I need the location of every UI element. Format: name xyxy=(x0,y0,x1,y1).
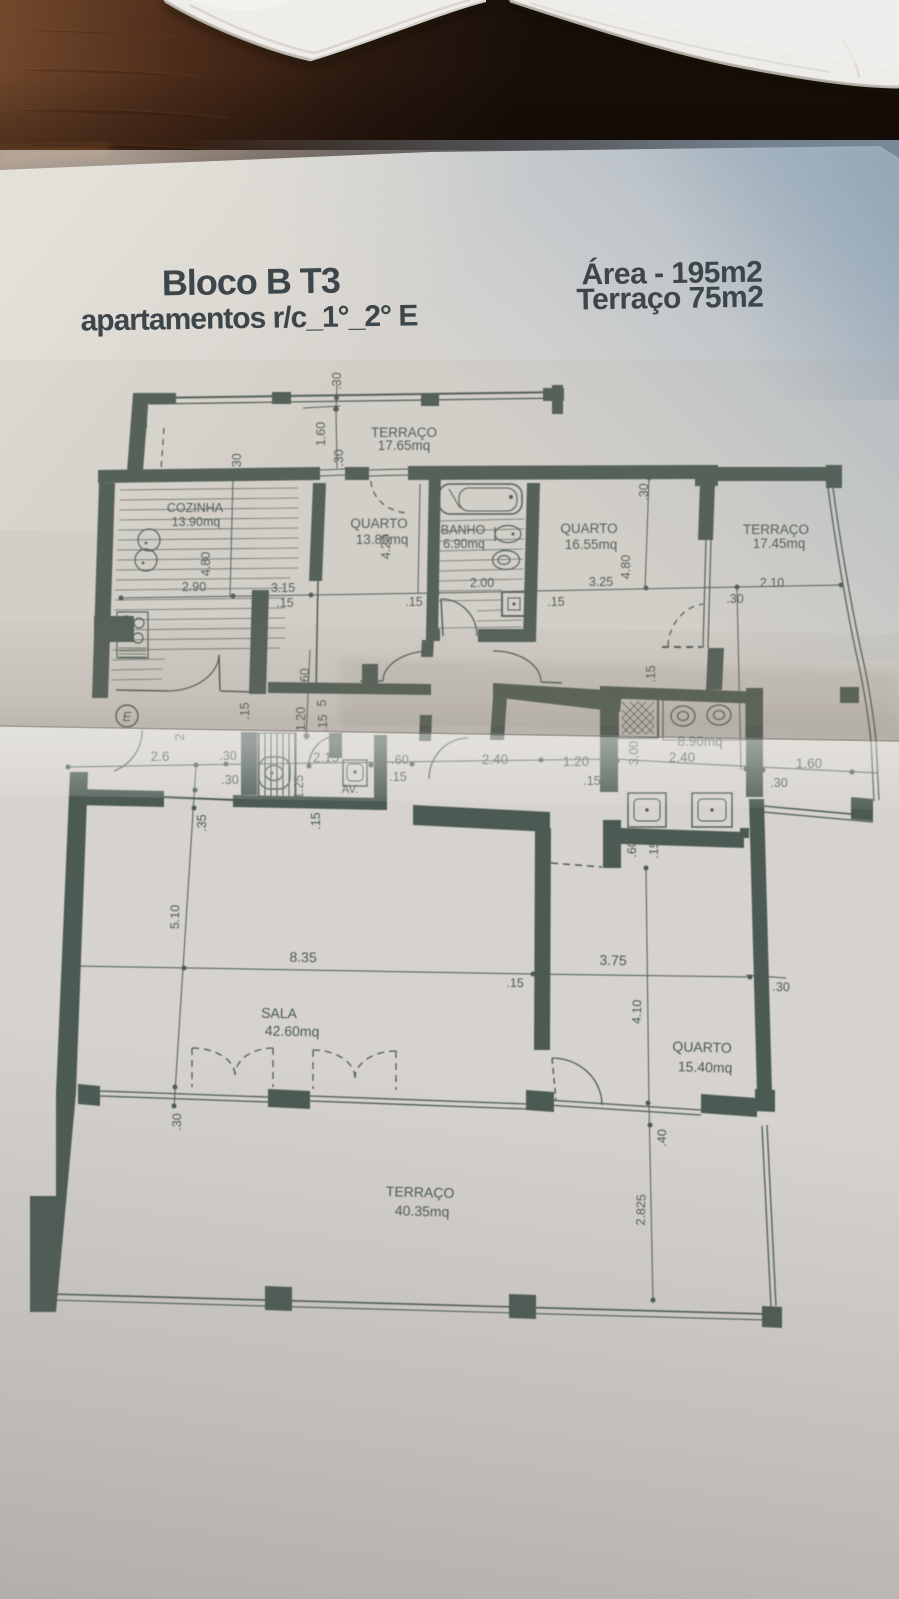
svg-text:5.10: 5.10 xyxy=(168,905,182,930)
svg-text:apartamentos r/c_1°_2° E: apartamentos r/c_1°_2° E xyxy=(80,299,417,337)
svg-text:.15: .15 xyxy=(647,841,661,859)
svg-text:.60: .60 xyxy=(625,840,639,858)
svg-text:8.35: 8.35 xyxy=(289,949,317,966)
svg-text:Terraço 75m2: Terraço 75m2 xyxy=(576,281,763,317)
svg-text:Bloco B T3: Bloco B T3 xyxy=(162,260,341,304)
svg-text:.15: .15 xyxy=(506,976,524,990)
svg-text:SALA: SALA xyxy=(261,1005,298,1022)
svg-text:.30: .30 xyxy=(772,980,790,994)
svg-text:3.75: 3.75 xyxy=(599,952,627,969)
svg-text:.15: .15 xyxy=(309,812,323,829)
svg-text:.35: .35 xyxy=(195,814,209,831)
